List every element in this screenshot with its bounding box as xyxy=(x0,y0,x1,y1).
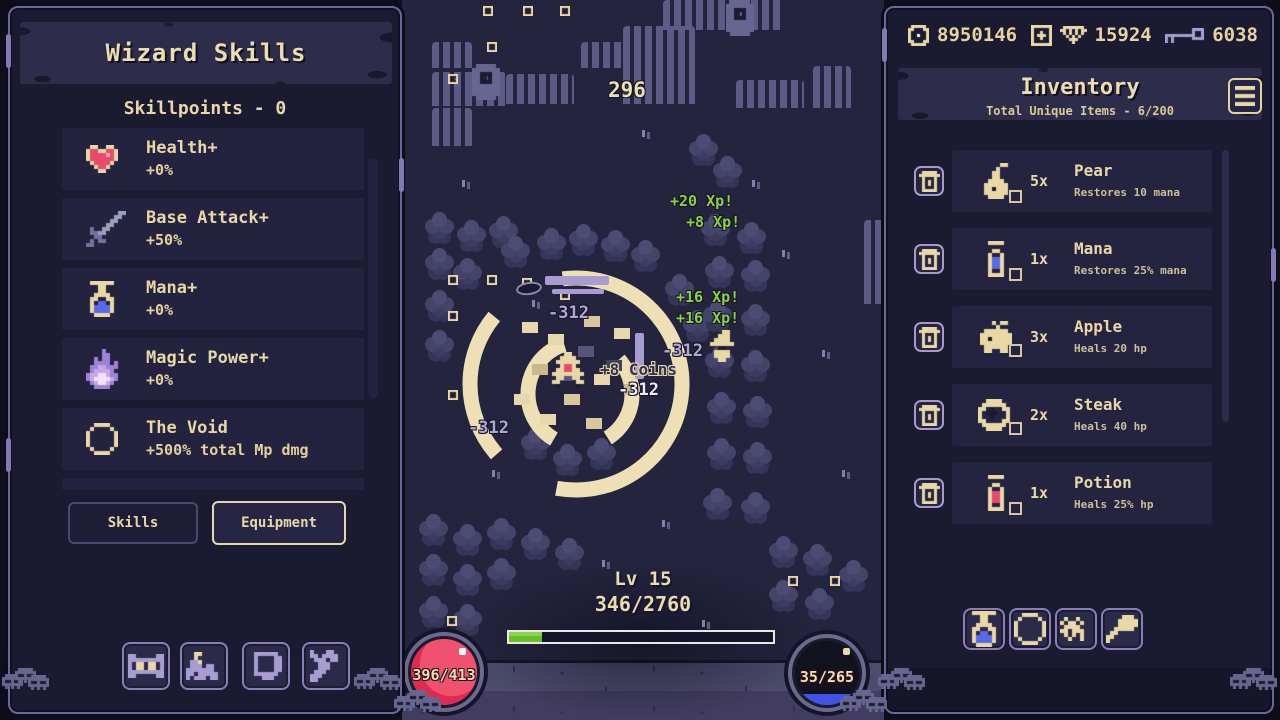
inventory-scrollbar[interactable] xyxy=(1222,150,1229,422)
item-description: Heals 40 hp xyxy=(1074,420,1147,433)
tree-decoration xyxy=(740,350,770,384)
grass-decoration xyxy=(752,180,755,187)
sword-icon xyxy=(86,211,128,247)
skill-value: +500% total Mp dmg xyxy=(146,441,309,459)
crafting-icon xyxy=(128,654,164,678)
mana-vial-icon xyxy=(984,241,1008,277)
skills-scrollbar[interactable] xyxy=(368,158,378,398)
keys-counter: 6038 xyxy=(1165,24,1258,46)
skillpoints-label: Skillpoints - 0 xyxy=(10,98,400,119)
inventory-item-steak[interactable]: 2x Steak Heals 40 hp xyxy=(952,384,1212,446)
skill-value: +0% xyxy=(146,371,269,389)
item-count: 5x xyxy=(1030,172,1060,190)
item-checkbox[interactable] xyxy=(1009,268,1022,281)
item-checkbox[interactable] xyxy=(1009,422,1022,435)
panel-bottom-edge xyxy=(886,668,1272,712)
skill-row-magic-power[interactable]: Magic Power+ +0% xyxy=(62,338,364,400)
loot-drop-icon xyxy=(487,42,497,52)
loot-drop-icon xyxy=(448,74,458,84)
tombstone-decoration xyxy=(472,64,500,100)
gems-value: 15924 xyxy=(1095,24,1152,46)
skull-icon xyxy=(904,675,925,690)
tree-decoration xyxy=(452,524,482,558)
tree-decoration xyxy=(768,536,798,570)
magic-beam xyxy=(545,276,609,285)
player-character xyxy=(548,352,588,388)
skill-name: Health+ xyxy=(146,139,218,158)
item-name: Mana xyxy=(1074,241,1187,257)
grass-decoration xyxy=(462,180,465,187)
skill-row-partial xyxy=(62,478,364,490)
skill-name: Base Attack+ xyxy=(146,209,269,228)
inventory-list: 5x Pear Restores 10 mana 1x Mana Restore… xyxy=(914,150,1244,524)
grass-decoration xyxy=(602,560,605,567)
list-item: 1x Mana Restores 25% mana xyxy=(914,228,1244,290)
xp-progress-label: 346/2760 xyxy=(402,592,884,616)
item-count: 2x xyxy=(1030,406,1060,424)
fence-decoration xyxy=(663,0,783,30)
skull-icon xyxy=(1256,675,1277,690)
panel-corner-accent xyxy=(6,34,11,68)
grass-decoration xyxy=(702,620,705,627)
list-item: 5x Pear Restores 10 mana xyxy=(914,150,1244,212)
tree-decoration xyxy=(554,538,584,572)
list-item: 3x Apple Heals 20 hp xyxy=(914,306,1244,368)
skull-pile-decoration xyxy=(2,666,52,696)
coins-counter: 8950146 xyxy=(908,24,1017,46)
tree-decoration xyxy=(740,304,770,338)
skill-value: +50% xyxy=(146,231,269,249)
spell-debris xyxy=(522,322,538,333)
ring-button[interactable] xyxy=(1009,608,1051,650)
mana-potion-icon xyxy=(86,281,128,317)
skill-list: Health+ +0% Base Attack+ +50% Mana+ +0% … xyxy=(62,128,364,470)
item-description: Restores 10 mana xyxy=(1074,186,1180,199)
inventory-subtitle: Total Unique Items - 6/200 xyxy=(898,104,1262,118)
inventory-header-band: Inventory Total Unique Items - 6/200 xyxy=(898,68,1262,120)
fence-decoration xyxy=(864,220,884,304)
skull-pile-decoration xyxy=(878,666,928,696)
skill-row-health[interactable]: Health+ +0% xyxy=(62,128,364,190)
staff-button[interactable] xyxy=(1101,608,1143,650)
item-name: Potion xyxy=(1074,475,1153,491)
quick-potion-button[interactable] xyxy=(963,608,1005,650)
magic-beam xyxy=(552,289,604,294)
pet-button[interactable] xyxy=(1055,608,1097,650)
keys-value: 6038 xyxy=(1212,24,1258,46)
coins-value: 8950146 xyxy=(937,24,1017,46)
tree-decoration xyxy=(742,442,772,476)
currency-bar: 8950146 15924 6038 xyxy=(908,24,1258,46)
trash-button[interactable] xyxy=(914,478,944,508)
heart-icon xyxy=(86,145,128,173)
inventory-menu-button[interactable] xyxy=(1228,78,1262,114)
skill-value: +0% xyxy=(146,301,197,319)
void-circle-icon xyxy=(86,423,128,455)
game-viewport[interactable]: 296 +20 Xp! +8 Xp! +16 Xp! +16 Xp! -312 … xyxy=(402,0,884,720)
health-value: 396/413 xyxy=(408,666,480,684)
fire-icon xyxy=(86,349,128,389)
tree-decoration xyxy=(424,212,454,246)
gem-icon xyxy=(1060,26,1087,44)
grass-decoration xyxy=(642,130,645,137)
inventory-item-potion[interactable]: 1x Potion Heals 25% hp xyxy=(952,462,1212,524)
fence-decoration xyxy=(581,42,625,68)
trash-icon xyxy=(919,327,940,348)
skill-name: Magic Power+ xyxy=(146,349,269,368)
inventory-item-mana[interactable]: 1x Mana Restores 25% mana xyxy=(952,228,1212,290)
tree-decoration xyxy=(520,528,550,562)
item-name: Apple xyxy=(1074,319,1147,335)
coin-icon xyxy=(908,25,929,46)
item-count: 3x xyxy=(1030,328,1060,346)
settings-wrench-button[interactable] xyxy=(302,642,350,690)
damage-popup: -312 xyxy=(662,341,703,361)
staff-icon xyxy=(1106,615,1138,643)
item-name: Pear xyxy=(1074,163,1180,179)
list-item: 1x Potion Heals 25% hp xyxy=(914,462,1244,524)
grass-decoration xyxy=(842,470,845,477)
item-description: Heals 25% hp xyxy=(1074,498,1153,511)
skill-row-mana[interactable]: Mana+ +0% xyxy=(62,268,364,330)
panel-corner-accent xyxy=(1271,248,1276,282)
item-checkbox[interactable] xyxy=(1009,190,1022,203)
fence-decoration xyxy=(813,66,851,108)
wizard-skills-panel: Wizard Skills Skillpoints - 0 Health+ +0… xyxy=(8,6,402,714)
skills-header-band: Wizard Skills xyxy=(20,22,392,84)
level-label: Lv 15 xyxy=(402,568,884,590)
game-screen: 296 +20 Xp! +8 Xp! +16 Xp! +16 Xp! -312 … xyxy=(0,0,1280,720)
xp-bar xyxy=(507,630,775,644)
inventory-panel: 8950146 15924 6038 Inventory Total Uniqu… xyxy=(884,6,1274,714)
loot-drop-icon xyxy=(483,6,493,16)
apple-icon xyxy=(980,321,1012,353)
xp-popup: +16 Xp! xyxy=(676,309,739,327)
fence-decoration xyxy=(432,108,472,146)
trash-button[interactable] xyxy=(914,166,944,196)
damage-popup: -312 xyxy=(548,303,589,323)
item-description: Restores 25% mana xyxy=(1074,264,1187,277)
inventory-item-apple[interactable]: 3x Apple Heals 20 hp xyxy=(952,306,1212,368)
inventory-title: Inventory xyxy=(898,68,1262,99)
fence-decoration xyxy=(432,42,472,68)
page-title: Wizard Skills xyxy=(20,22,392,84)
xp-popup: +8 Xp! xyxy=(686,213,740,231)
add-currency-button[interactable] xyxy=(1031,25,1052,46)
skull-pile-decoration xyxy=(1230,666,1280,696)
skull-icon xyxy=(420,697,441,712)
tombstone-decoration xyxy=(726,0,754,36)
tree-decoration xyxy=(740,260,770,294)
panel-corner-accent xyxy=(399,158,404,192)
pet-icon xyxy=(1060,617,1092,641)
loot-drop-icon xyxy=(560,6,570,16)
trash-button[interactable] xyxy=(914,244,944,274)
ring-icon xyxy=(1014,613,1046,645)
gems-counter: 15924 xyxy=(1031,24,1152,46)
item-name: Steak xyxy=(1074,397,1147,413)
item-count: 1x xyxy=(1030,250,1060,268)
skill-name: The Void xyxy=(146,419,309,438)
potion-icon xyxy=(968,611,1000,647)
tab-equipment[interactable]: Equipment xyxy=(212,501,346,545)
grass-decoration xyxy=(782,250,785,257)
fence-decoration xyxy=(506,74,574,104)
loot-drop-icon xyxy=(523,6,533,16)
skill-name: Mana+ xyxy=(146,279,197,298)
tree-decoration xyxy=(712,156,742,190)
potion-vial-icon xyxy=(984,475,1008,511)
skill-value: +0% xyxy=(146,161,218,179)
journal-icon xyxy=(250,652,282,680)
key-icon xyxy=(1165,28,1204,43)
loot-drop-icon xyxy=(447,616,457,626)
trash-button[interactable] xyxy=(914,322,944,352)
item-count: 1x xyxy=(1030,484,1060,502)
menu-lines-icon xyxy=(1235,86,1255,106)
tree-decoration xyxy=(740,492,770,526)
trash-icon xyxy=(919,405,940,426)
damage-popup: -312 xyxy=(468,418,509,438)
sparkle-icon xyxy=(459,648,466,655)
pear-icon xyxy=(980,163,1012,199)
tab-skills[interactable]: Skills xyxy=(68,502,198,544)
skill-row-base-attack[interactable]: Base Attack+ +50% xyxy=(62,198,364,260)
grass-decoration xyxy=(822,350,825,357)
sparkle-icon xyxy=(843,648,850,655)
base-button[interactable] xyxy=(180,642,228,690)
trash-button[interactable] xyxy=(914,400,944,430)
panel-corner-accent xyxy=(6,438,11,472)
skill-row-the-void[interactable]: The Void +500% total Mp dmg xyxy=(62,408,364,470)
base-icon xyxy=(186,652,222,680)
crafting-button[interactable] xyxy=(122,642,170,690)
wizard-npc xyxy=(706,330,738,362)
panel-corner-accent xyxy=(882,28,887,62)
tree-decoration xyxy=(736,222,766,256)
coins-popup: +8 Coins xyxy=(600,360,677,379)
journal-button[interactable] xyxy=(242,642,290,690)
xp-popup: +16 Xp! xyxy=(676,288,739,306)
skull-icon xyxy=(28,675,49,690)
damage-number: 296 xyxy=(608,78,646,102)
trash-icon xyxy=(919,171,940,192)
tree-decoration xyxy=(742,396,772,430)
item-checkbox[interactable] xyxy=(1009,344,1022,357)
skull-pile-decoration xyxy=(394,688,444,718)
xp-popup: +20 Xp! xyxy=(670,192,733,210)
mana-value: 35/265 xyxy=(792,668,862,686)
trash-icon xyxy=(919,483,940,504)
fence-decoration xyxy=(736,80,804,108)
trash-icon xyxy=(919,249,940,270)
item-checkbox[interactable] xyxy=(1009,502,1022,515)
inventory-item-pear[interactable]: 5x Pear Restores 10 mana xyxy=(952,150,1212,212)
list-item: 2x Steak Heals 40 hp xyxy=(914,384,1244,446)
wrench-icon xyxy=(310,650,342,682)
item-description: Heals 20 hp xyxy=(1074,342,1147,355)
xp-bar-fill xyxy=(509,632,542,642)
skull-icon xyxy=(866,697,887,712)
damage-popup: -312 xyxy=(618,380,659,400)
